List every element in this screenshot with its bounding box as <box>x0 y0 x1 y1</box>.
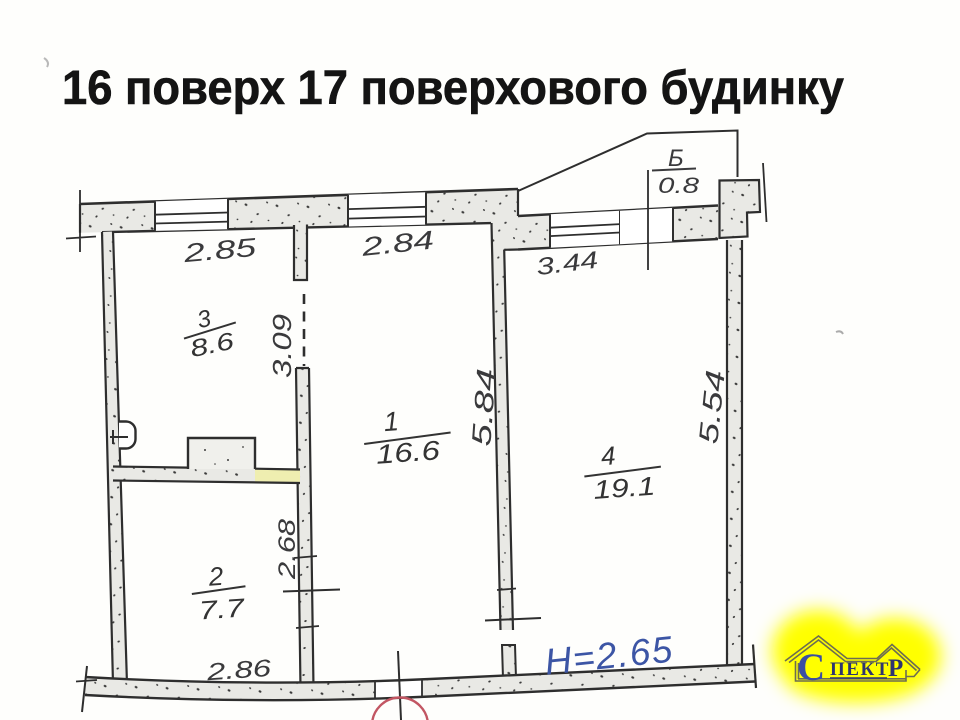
svg-text:7.7: 7.7 <box>198 592 247 625</box>
svg-text:2.86: 2.86 <box>205 655 273 687</box>
svg-text:16.6: 16.6 <box>375 435 442 469</box>
svg-text:16 поверх 17 поверхового будин: 16 поверх 17 поверхового будинку <box>62 62 844 115</box>
svg-text:С: С <box>797 646 825 689</box>
svg-text:2.68: 2.68 <box>274 518 301 580</box>
svg-text:3.09: 3.09 <box>267 314 297 378</box>
svg-text:5.54: 5.54 <box>693 369 731 446</box>
svg-text:Р: Р <box>888 655 903 682</box>
svg-text:ПЕКТ: ПЕКТ <box>830 659 890 680</box>
svg-text:8.6: 8.6 <box>188 327 237 363</box>
svg-text:2: 2 <box>207 561 225 592</box>
svg-text:2.84: 2.84 <box>359 225 435 263</box>
svg-text:0.8: 0.8 <box>658 173 700 198</box>
svg-text:Б: Б <box>668 145 684 172</box>
svg-text:1: 1 <box>383 406 400 437</box>
svg-text:5.84: 5.84 <box>466 367 501 447</box>
svg-text:3.44: 3.44 <box>535 247 600 281</box>
svg-text:19.1: 19.1 <box>592 471 656 505</box>
svg-text:4: 4 <box>600 440 617 471</box>
svg-text:2.85: 2.85 <box>181 232 258 268</box>
